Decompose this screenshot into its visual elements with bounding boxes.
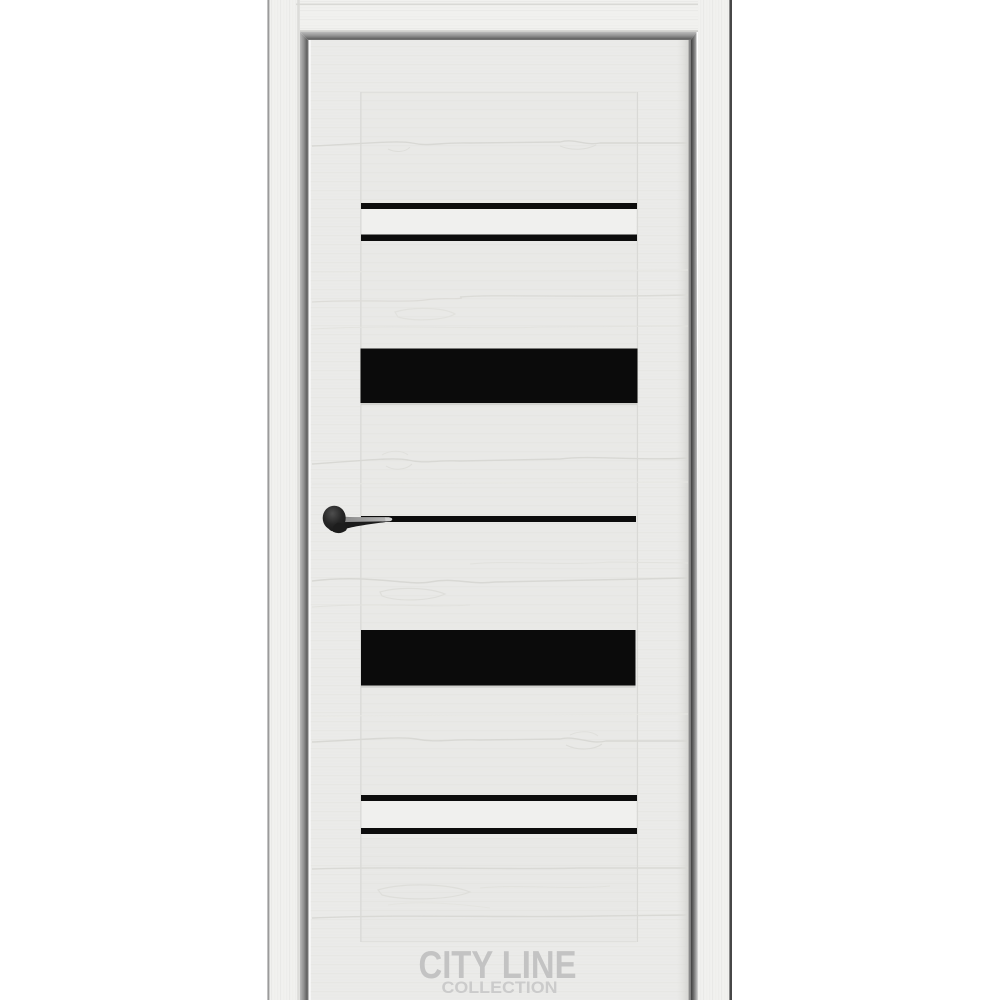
svg-text:COLLECTION: COLLECTION — [442, 979, 558, 997]
